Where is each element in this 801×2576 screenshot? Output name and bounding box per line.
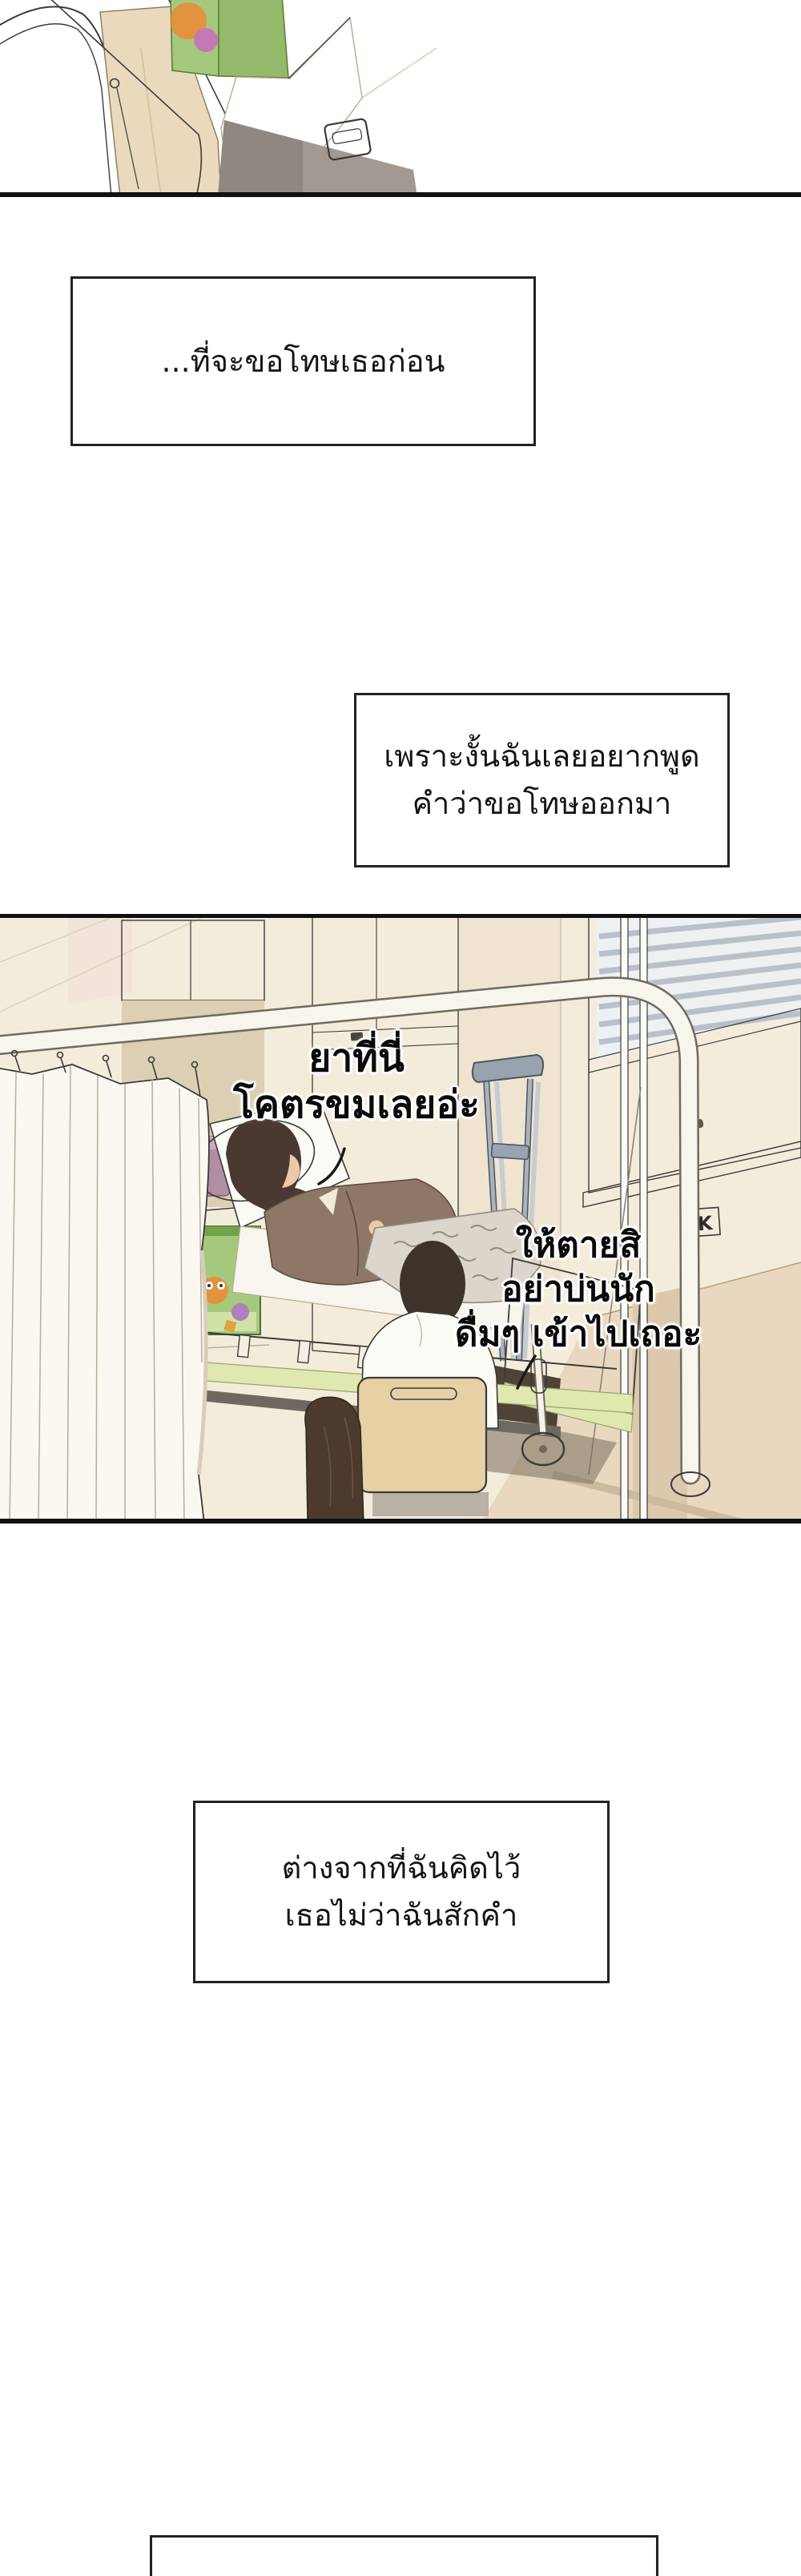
coat-on-chair — [305, 1397, 364, 1523]
crutch-grip — [491, 1143, 529, 1159]
speech-line: ยาที่นี่ — [233, 1036, 480, 1082]
narration-text: ...ที่จะขอโทษเธอก่อน — [161, 338, 445, 385]
panel-cabinet-closeup — [0, 0, 801, 197]
hospital-room-illustration: K — [0, 914, 801, 1523]
speech-bubble-2: ให้ตายสิ อย่าบ่นนัก ดื่มๆ เข้าไปเถอะ — [455, 1223, 702, 1356]
speech-line: ดื่มๆ เข้าไปเถอะ — [455, 1312, 702, 1356]
comic-page: ...ที่จะขอโทษเธอก่อน เพราะงั้นฉันเลยอยาก… — [0, 0, 801, 2576]
purple-sticker — [231, 1303, 249, 1321]
panel-border — [0, 914, 801, 918]
juice-box — [170, 0, 288, 78]
privacy-curtain — [0, 1051, 209, 1524]
chair — [358, 1378, 489, 1523]
speech-line: โคตรขมเลยอ่ะ — [233, 1082, 480, 1129]
wall-pink-section — [68, 914, 132, 1004]
narration-box-3: ต่างจากที่ฉันคิดไว้ เธอไม่ว่าฉันสักคำ — [193, 1801, 610, 1983]
narration-text: เธอไม่ว่าฉันสักคำ — [285, 1892, 518, 1939]
narration-box-1: ...ที่จะขอโทษเธอก่อน — [70, 276, 536, 446]
speech-line: ให้ตายสิ — [455, 1223, 702, 1267]
narration-box-4-partial — [150, 2535, 658, 2576]
chair-back — [358, 1378, 486, 1492]
juice-box-pink-circle — [194, 28, 218, 52]
panel-border — [0, 1519, 801, 1523]
speech-bubble-1: ยาที่นี่ โคตรขมเลยอ่ะ — [233, 1036, 480, 1128]
panel-border — [0, 192, 801, 197]
narration-text: คำว่าขอโทษออกมา — [413, 780, 672, 827]
narration-text: ต่างจากที่ฉันคิดไว้ — [282, 1845, 521, 1892]
speech-line: อย่าบ่นนัก — [455, 1267, 702, 1311]
panel-hospital-room: K — [0, 914, 801, 1523]
cabinet-illustration — [0, 0, 801, 197]
narration-text: เพราะงั้นฉันเลยอยากพูด — [384, 733, 699, 780]
narration-box-2: เพราะงั้นฉันเลยอยากพูด คำว่าขอโทษออกมา — [354, 693, 730, 867]
